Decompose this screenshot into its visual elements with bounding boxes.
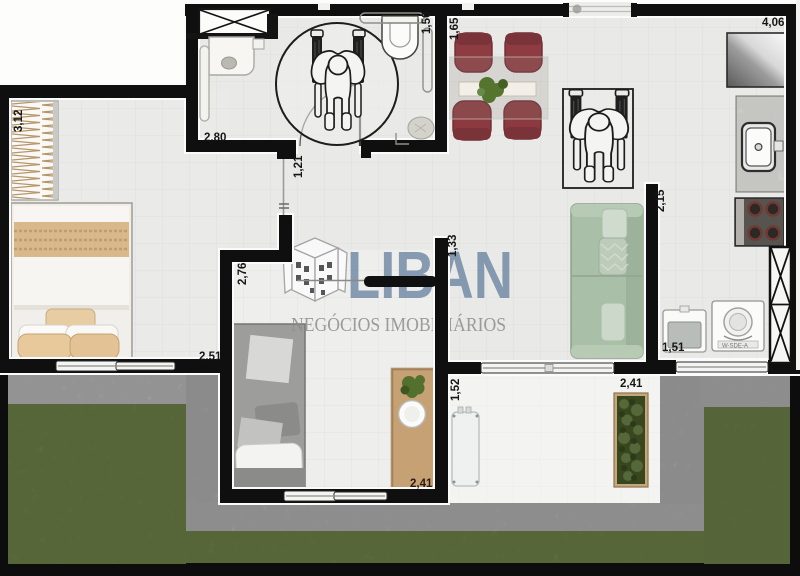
svg-text:2,80: 2,80 bbox=[204, 132, 226, 144]
svg-text:W-SDE-A: W-SDE-A bbox=[722, 344, 748, 350]
svg-text:1,51: 1,51 bbox=[662, 342, 685, 354]
svg-text:3,12: 3,12 bbox=[13, 110, 25, 132]
svg-text:2,15: 2,15 bbox=[655, 189, 667, 212]
svg-text:1,21: 1,21 bbox=[293, 155, 305, 178]
svg-text:1,33: 1,33 bbox=[447, 235, 459, 257]
svg-text:1,65: 1,65 bbox=[449, 17, 461, 40]
svg-text:LIBAN: LIBAN bbox=[347, 238, 513, 313]
svg-text:2,76: 2,76 bbox=[237, 263, 249, 285]
svg-text:2,51: 2,51 bbox=[199, 351, 222, 363]
svg-text:4,06: 4,06 bbox=[762, 17, 784, 29]
svg-text:2,41: 2,41 bbox=[620, 378, 643, 390]
svg-text:NEGÓCIOS IMOBILIÁRIOS: NEGÓCIOS IMOBILIÁRIOS bbox=[291, 314, 506, 336]
svg-text:1,52: 1,52 bbox=[450, 379, 462, 401]
svg-text:2,41: 2,41 bbox=[410, 478, 433, 490]
svg-text:1,50: 1,50 bbox=[421, 12, 433, 34]
